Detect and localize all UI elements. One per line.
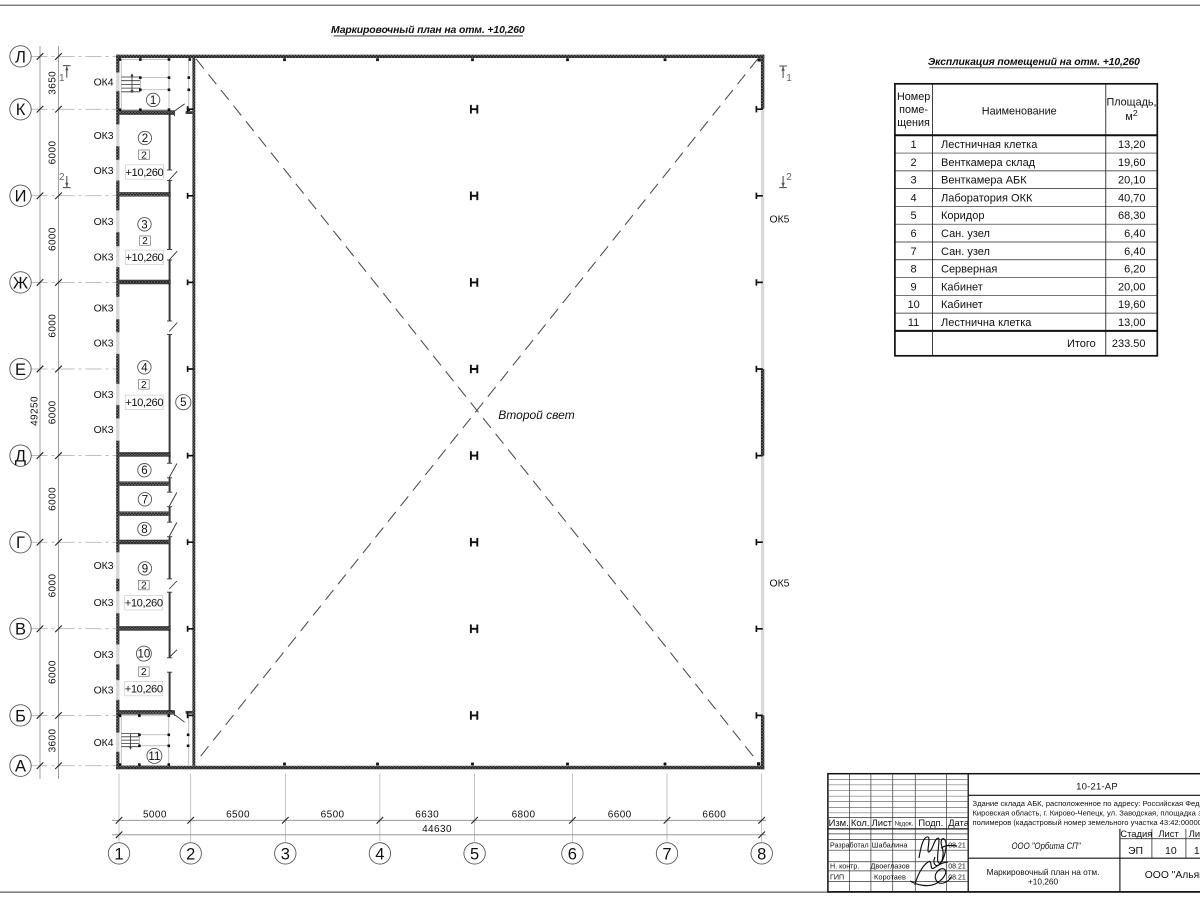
svg-text:Дата: Дата — [948, 817, 970, 828]
svg-text:В: В — [15, 621, 26, 639]
svg-text:1: 1 — [911, 139, 917, 151]
svg-text:Л: Л — [15, 48, 26, 66]
svg-text:11: 11 — [148, 751, 160, 763]
svg-text:13,00: 13,00 — [1118, 317, 1146, 329]
svg-text:2: 2 — [59, 172, 65, 183]
svg-text:ГИП: ГИП — [830, 873, 844, 881]
svg-text:Ж: Ж — [13, 274, 29, 292]
svg-text:6000: 6000 — [48, 574, 59, 598]
svg-text:233.50: 233.50 — [1112, 338, 1146, 350]
svg-text:Площадь,: Площадь, — [1107, 97, 1157, 109]
svg-text:Номер: Номер — [897, 91, 930, 103]
svg-text:Кабинет: Кабинет — [941, 281, 983, 293]
svg-text:Лестничная клетка: Лестничная клетка — [941, 139, 1038, 151]
svg-text:6000: 6000 — [48, 227, 59, 251]
svg-text:40,70: 40,70 — [1118, 192, 1146, 204]
svg-text:Листов: Листов — [1189, 828, 1200, 839]
svg-text:6600: 6600 — [702, 810, 726, 821]
svg-text:Двоеглазов: Двоеглазов — [870, 861, 909, 870]
svg-text:поме-: поме- — [899, 104, 928, 116]
svg-text:6,20: 6,20 — [1124, 264, 1145, 276]
svg-text:1: 1 — [114, 845, 123, 863]
svg-text:6500: 6500 — [226, 810, 250, 821]
svg-text:ОК4: ОК4 — [94, 77, 114, 88]
svg-text:ОК3: ОК3 — [94, 561, 114, 572]
svg-text:10: 10 — [1165, 845, 1177, 857]
svg-text:Изм.: Изм. — [829, 817, 849, 828]
svg-text:И: И — [15, 188, 27, 206]
svg-text:2: 2 — [141, 667, 147, 678]
svg-text:6: 6 — [141, 465, 147, 477]
svg-text:+10,260: +10,260 — [1028, 877, 1059, 887]
svg-text:№док.: №док. — [895, 821, 914, 828]
svg-text:13,20: 13,20 — [1118, 139, 1146, 151]
svg-text:Е: Е — [15, 361, 26, 379]
svg-text:ОК4: ОК4 — [94, 738, 114, 749]
svg-text:2: 2 — [141, 581, 147, 592]
svg-text:Лист: Лист — [1158, 828, 1179, 839]
svg-text:Кировская область, г. Кирово-Ч: Кировская область, г. Кирово-Чепецк, ул.… — [973, 808, 1200, 817]
svg-text:10: 10 — [907, 299, 919, 311]
svg-text:3: 3 — [911, 175, 917, 187]
svg-text:2: 2 — [142, 236, 148, 247]
svg-text:6,40: 6,40 — [1124, 228, 1145, 240]
svg-text:ОК3: ОК3 — [94, 217, 114, 228]
svg-text:7: 7 — [662, 845, 671, 863]
svg-text:9: 9 — [911, 281, 917, 293]
svg-text:Б: Б — [15, 707, 26, 725]
svg-text:ОК3: ОК3 — [94, 166, 114, 177]
svg-text:5000: 5000 — [143, 810, 167, 821]
svg-text:Сан. узел: Сан. узел — [941, 228, 990, 240]
svg-text:20,00: 20,00 — [1118, 281, 1146, 293]
svg-text:Н. контр.: Н. контр. — [830, 862, 859, 870]
svg-text:1: 1 — [150, 95, 156, 107]
svg-text:ОК3: ОК3 — [94, 339, 114, 350]
svg-text:ОК3: ОК3 — [94, 686, 114, 697]
svg-text:3650: 3650 — [48, 71, 59, 95]
svg-text:ЭП: ЭП — [1128, 845, 1143, 857]
svg-text:ОК3: ОК3 — [94, 390, 114, 401]
svg-text:6000: 6000 — [48, 314, 59, 338]
svg-text:ОК3: ОК3 — [94, 304, 114, 315]
svg-text:6000: 6000 — [48, 141, 59, 165]
svg-text:+10,260: +10,260 — [125, 397, 163, 409]
svg-text:Коридор: Коридор — [941, 210, 984, 222]
svg-text:6000: 6000 — [48, 487, 59, 511]
svg-text:19,60: 19,60 — [1118, 299, 1146, 311]
svg-text:Лист: Лист — [872, 817, 893, 828]
svg-text:Серверная: Серверная — [941, 264, 997, 276]
svg-text:Кабинет: Кабинет — [941, 299, 983, 311]
svg-text:Сан. узел: Сан. узел — [941, 246, 990, 258]
svg-text:5: 5 — [470, 845, 479, 863]
svg-text:Здание склада АБК, расположенн: Здание склада АБК, расположенное по адре… — [973, 799, 1200, 808]
svg-text:К: К — [16, 101, 26, 119]
svg-text:49250: 49250 — [29, 396, 40, 426]
svg-text:6: 6 — [911, 228, 917, 240]
svg-text:10: 10 — [138, 649, 151, 661]
svg-text:6600: 6600 — [608, 810, 632, 821]
svg-text:3: 3 — [141, 219, 147, 231]
svg-text:44630: 44630 — [422, 824, 452, 835]
svg-text:Маркировочный план на отм.: Маркировочный план на отм. — [987, 867, 1100, 877]
svg-text:Венткамера АБК: Венткамера АБК — [941, 175, 1027, 187]
svg-text:ОК5: ОК5 — [770, 215, 790, 226]
svg-text:3600: 3600 — [48, 729, 59, 753]
svg-text:Стадия: Стадия — [1120, 828, 1152, 839]
svg-text:3: 3 — [281, 845, 290, 863]
svg-text:Венткамера склад: Венткамера склад — [941, 157, 1036, 169]
svg-text:5: 5 — [180, 397, 186, 409]
svg-text:Лестнична клетка: Лестнична клетка — [941, 317, 1032, 329]
svg-text:полимеров (кадастровый номер з: полимеров (кадастровый номер земельного … — [973, 818, 1200, 827]
svg-text:2: 2 — [141, 150, 147, 161]
svg-text:Маркировочный план на отм. +10: Маркировочный план на отм. +10,260 — [331, 25, 525, 36]
svg-text:20,10: 20,10 — [1118, 175, 1146, 187]
svg-text:+10,260: +10,260 — [125, 598, 163, 610]
svg-text:10-21-АР: 10-21-АР — [1076, 782, 1118, 793]
svg-text:Итого: Итого — [1067, 338, 1096, 350]
svg-text:ОК3: ОК3 — [94, 131, 114, 142]
svg-text:68,30: 68,30 — [1118, 210, 1146, 222]
svg-text:Подп.: Подп. — [918, 817, 943, 828]
svg-text:6630: 6630 — [415, 810, 439, 821]
svg-text:Разработал: Разработал — [830, 841, 869, 849]
svg-text:11: 11 — [908, 317, 919, 329]
svg-text:2: 2 — [786, 172, 792, 183]
svg-text:ОК3: ОК3 — [94, 650, 114, 661]
svg-text:4: 4 — [375, 845, 384, 863]
svg-text:7: 7 — [142, 494, 148, 506]
svg-text:щения: щения — [897, 117, 930, 129]
svg-text:+10,260: +10,260 — [125, 167, 163, 179]
svg-text:Шабалина: Шабалина — [872, 840, 909, 849]
svg-text:08.21: 08.21 — [948, 864, 966, 871]
svg-text:Лаборатория ОКК: Лаборатория ОКК — [941, 192, 1033, 204]
svg-text:Наименование: Наименование — [982, 106, 1057, 118]
svg-text:6000: 6000 — [48, 660, 59, 684]
svg-text:+10,260: +10,260 — [125, 684, 163, 696]
svg-text:19,60: 19,60 — [1118, 157, 1146, 169]
svg-text:1: 1 — [1194, 845, 1200, 857]
svg-text:4: 4 — [141, 362, 148, 374]
svg-text:6500: 6500 — [321, 810, 345, 821]
svg-text:6800: 6800 — [512, 810, 536, 821]
svg-text:1: 1 — [59, 73, 65, 84]
svg-text:2: 2 — [141, 380, 147, 391]
svg-text:2: 2 — [186, 845, 195, 863]
svg-text:8: 8 — [141, 524, 147, 536]
svg-text:4: 4 — [911, 192, 917, 204]
svg-text:5: 5 — [911, 210, 917, 222]
svg-text:1: 1 — [786, 73, 792, 84]
svg-text:Д: Д — [15, 448, 26, 466]
svg-text:Экспликация помещений на отм.: Экспликация помещений на отм. +10,260 — [928, 57, 1140, 68]
svg-text:+10,260: +10,260 — [125, 252, 163, 264]
svg-text:ОК5: ОК5 — [770, 579, 790, 590]
svg-text:Кол.: Кол. — [851, 817, 870, 828]
svg-text:8: 8 — [911, 264, 917, 276]
svg-text:Коротаев: Коротаев — [874, 872, 906, 881]
svg-text:9: 9 — [142, 563, 148, 575]
svg-text:8: 8 — [757, 845, 766, 863]
svg-text:Второй свет: Второй свет — [498, 408, 574, 422]
svg-text:2: 2 — [911, 157, 917, 169]
svg-text:ОК3: ОК3 — [94, 598, 114, 609]
svg-text:6000: 6000 — [48, 400, 59, 424]
svg-text:6,40: 6,40 — [1124, 246, 1145, 258]
svg-text:А: А — [15, 758, 26, 776]
svg-text:6: 6 — [568, 845, 577, 863]
svg-text:ОК3: ОК3 — [94, 425, 114, 436]
svg-text:ООО "Альянс: ООО "Альянс — [1145, 870, 1200, 881]
svg-text:ОК3: ОК3 — [94, 252, 114, 263]
svg-text:Г: Г — [16, 534, 25, 552]
svg-text:ООО "Орбита СП": ООО "Орбита СП" — [1012, 840, 1082, 851]
svg-text:7: 7 — [911, 246, 917, 258]
svg-text:2: 2 — [142, 133, 148, 145]
